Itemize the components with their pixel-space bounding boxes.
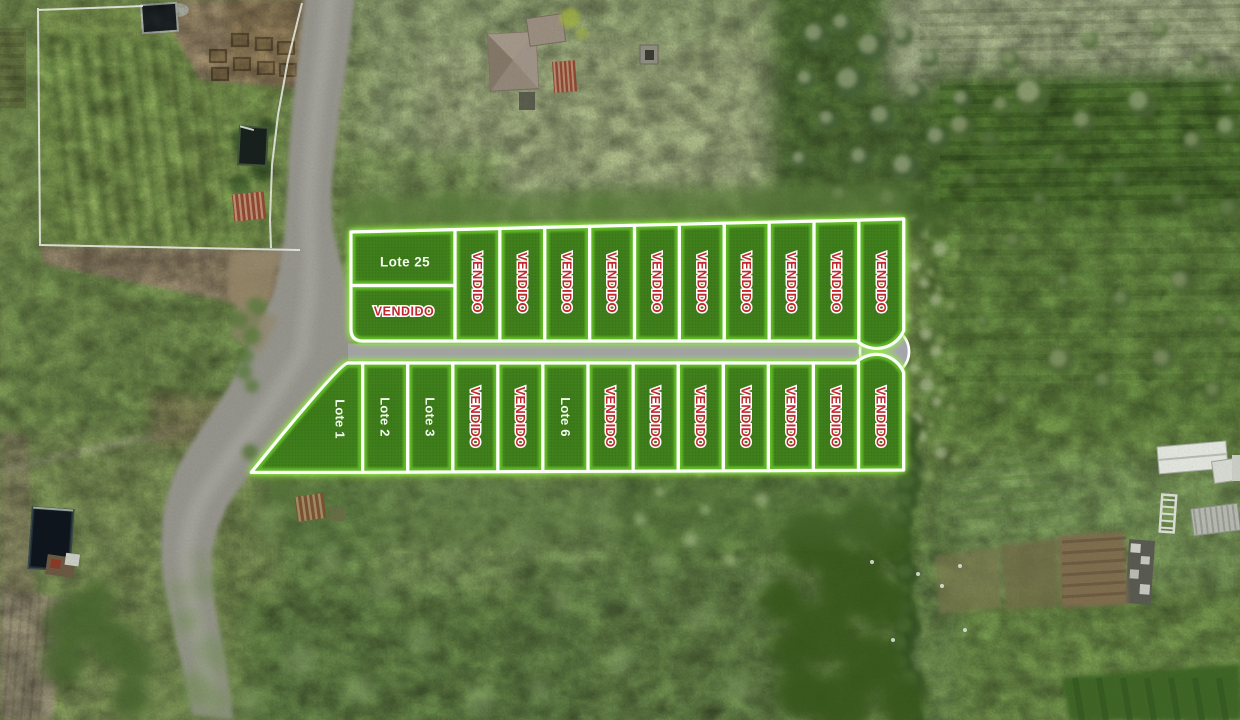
svg-text:VENDIDO: VENDIDO [515, 252, 530, 313]
svg-text:Lote 3: Lote 3 [423, 397, 438, 436]
svg-text:VENDIDO: VENDIDO [374, 305, 434, 319]
svg-text:VENDIDO: VENDIDO [874, 387, 889, 448]
svg-text:Lote 1: Lote 1 [333, 399, 348, 438]
svg-text:VENDIDO: VENDIDO [649, 252, 664, 313]
svg-text:Lote 6: Lote 6 [558, 397, 573, 436]
svg-text:VENDIDO: VENDIDO [874, 252, 889, 313]
svg-text:VENDIDO: VENDIDO [738, 387, 753, 448]
svg-text:VENDIDO: VENDIDO [829, 387, 844, 448]
svg-text:VENDIDO: VENDIDO [513, 387, 528, 448]
svg-text:VENDIDO: VENDIDO [648, 387, 663, 448]
svg-text:Lote 25: Lote 25 [380, 255, 430, 270]
svg-text:VENDIDO: VENDIDO [693, 387, 708, 448]
svg-text:VENDIDO: VENDIDO [783, 387, 798, 448]
svg-text:VENDIDO: VENDIDO [470, 252, 485, 313]
svg-text:VENDIDO: VENDIDO [739, 252, 754, 313]
svg-text:VENDIDO: VENDIDO [605, 252, 620, 313]
svg-text:VENDIDO: VENDIDO [829, 252, 844, 313]
svg-text:VENDIDO: VENDIDO [603, 387, 618, 448]
svg-text:Lote 2: Lote 2 [378, 397, 393, 436]
svg-text:VENDIDO: VENDIDO [468, 387, 483, 448]
svg-text:VENDIDO: VENDIDO [784, 252, 799, 313]
svg-text:VENDIDO: VENDIDO [694, 252, 709, 313]
svg-text:VENDIDO: VENDIDO [560, 252, 575, 313]
